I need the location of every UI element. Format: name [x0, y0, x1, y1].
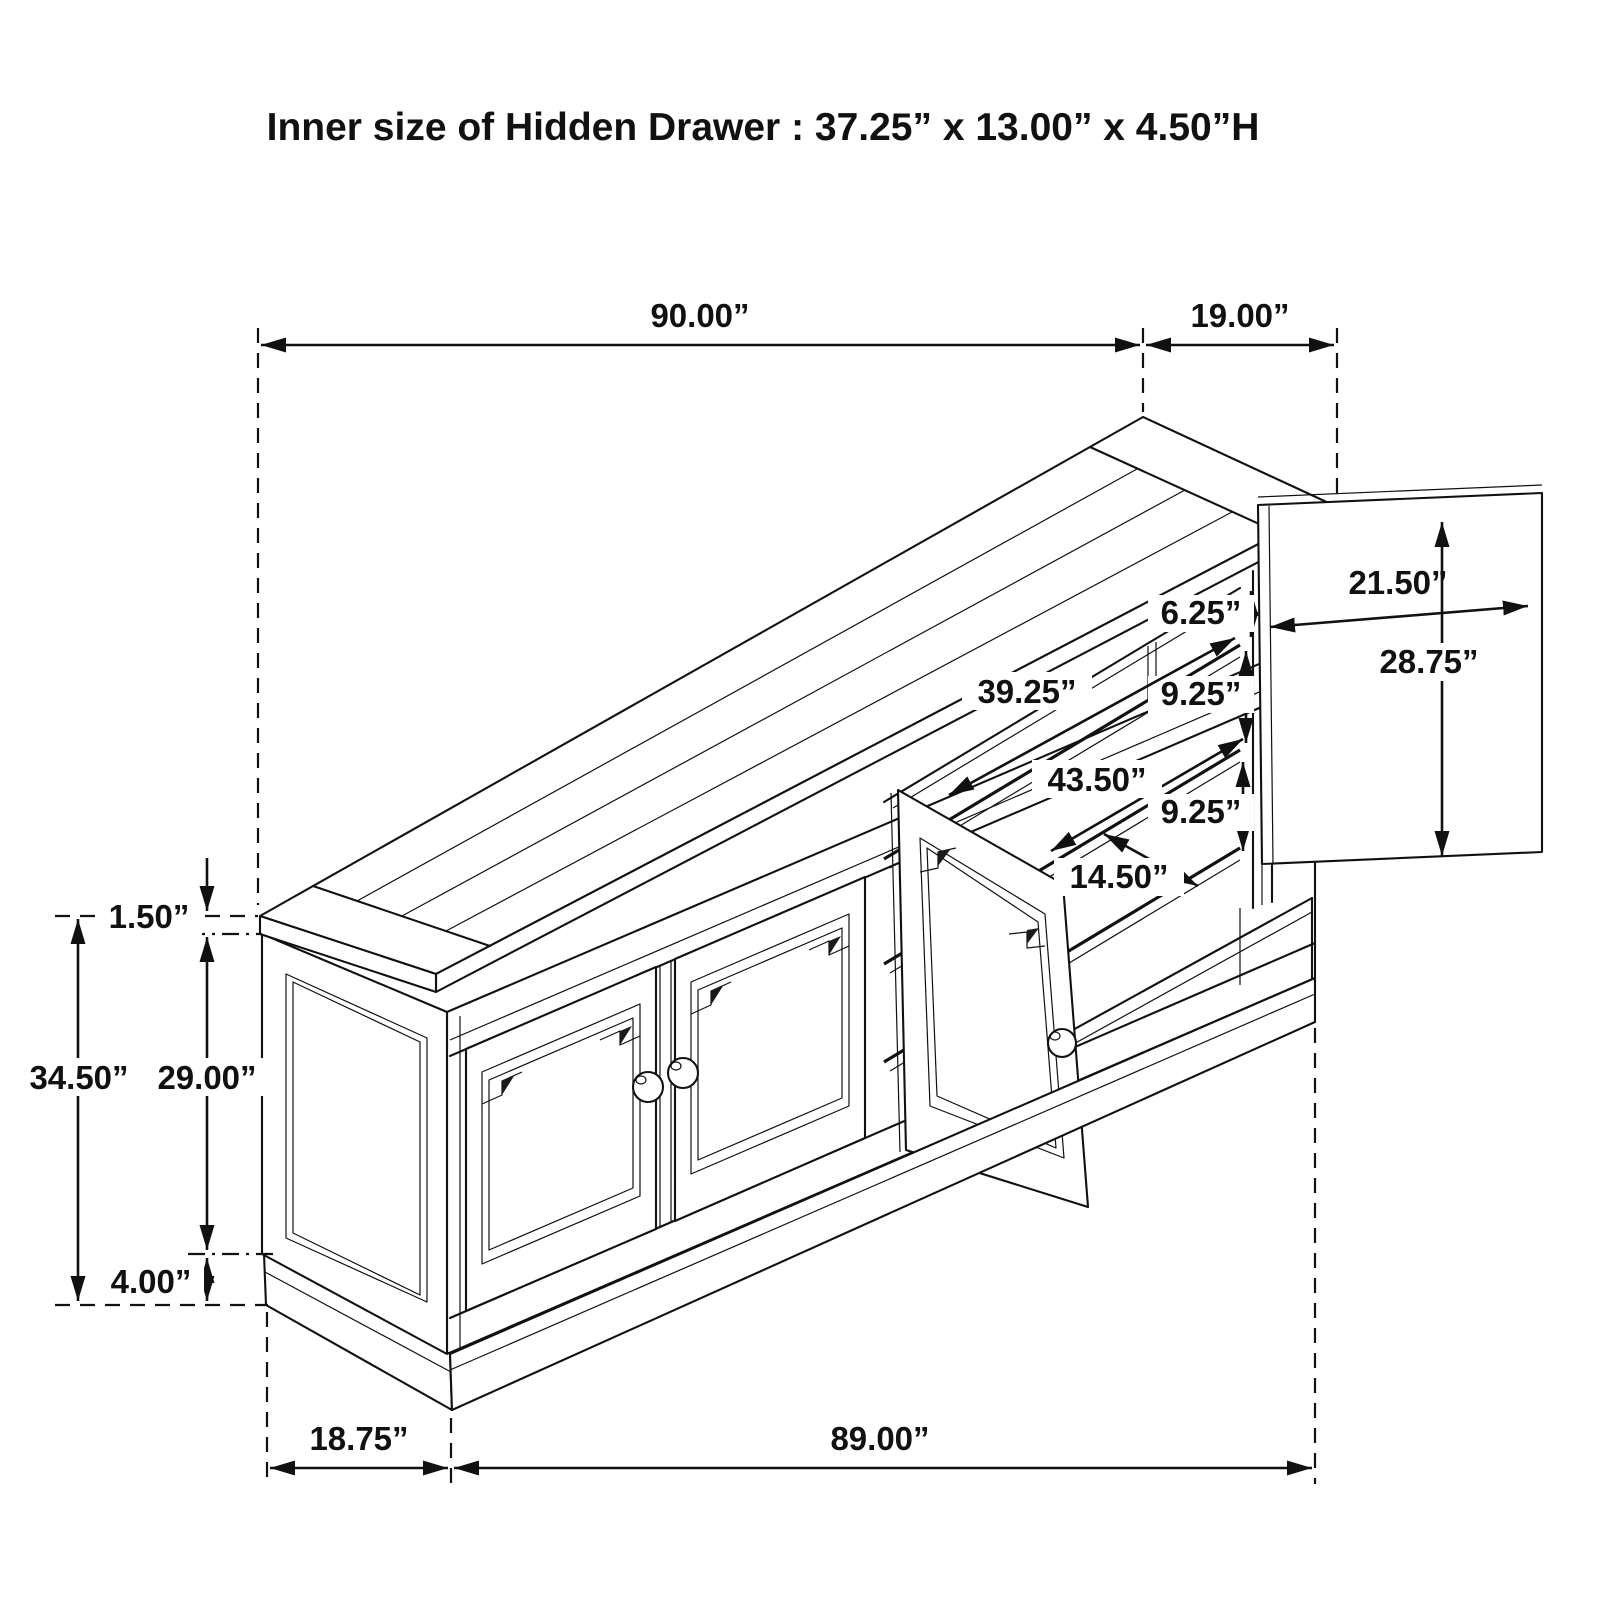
- svg-text:1.50”: 1.50”: [109, 898, 190, 935]
- dim-overall-height: 34.50”: [14, 919, 144, 1301]
- dim-door-opening-height: 29.00”: [142, 937, 272, 1250]
- dim-side-door-width: 19.00”: [1146, 297, 1334, 345]
- svg-text:90.00”: 90.00”: [650, 297, 749, 334]
- dim-body-length: 89.00”: [454, 1420, 1312, 1468]
- dim-top-thickness: 1.50”: [55, 858, 262, 936]
- svg-text:9.25”: 9.25”: [1161, 675, 1242, 712]
- svg-text:9.25”: 9.25”: [1161, 793, 1242, 830]
- svg-text:4.00”: 4.00”: [111, 1263, 192, 1300]
- svg-text:28.75”: 28.75”: [1379, 643, 1478, 680]
- svg-text:29.00”: 29.00”: [157, 1059, 256, 1096]
- diagram-page: Inner size of Hidden Drawer : 37.25” x 1…: [0, 0, 1600, 1600]
- diagram-title: Inner size of Hidden Drawer : 37.25” x 1…: [267, 106, 1260, 149]
- svg-text:43.50”: 43.50”: [1047, 761, 1146, 798]
- svg-text:14.50”: 14.50”: [1069, 858, 1168, 895]
- svg-text:89.00”: 89.00”: [830, 1420, 929, 1457]
- svg-text:18.75”: 18.75”: [309, 1420, 408, 1457]
- svg-text:6.25”: 6.25”: [1161, 594, 1242, 631]
- svg-text:21.50”: 21.50”: [1348, 564, 1447, 601]
- svg-text:19.00”: 19.00”: [1190, 297, 1289, 334]
- dim-base-height: 4.00”: [55, 1254, 274, 1305]
- svg-text:34.50”: 34.50”: [29, 1059, 128, 1096]
- furniture-dimension-diagram: Inner size of Hidden Drawer : 37.25” x 1…: [0, 0, 1600, 1600]
- dim-top-shelf-space: 6.25”: [1148, 591, 1254, 637]
- svg-text:39.25”: 39.25”: [977, 673, 1076, 710]
